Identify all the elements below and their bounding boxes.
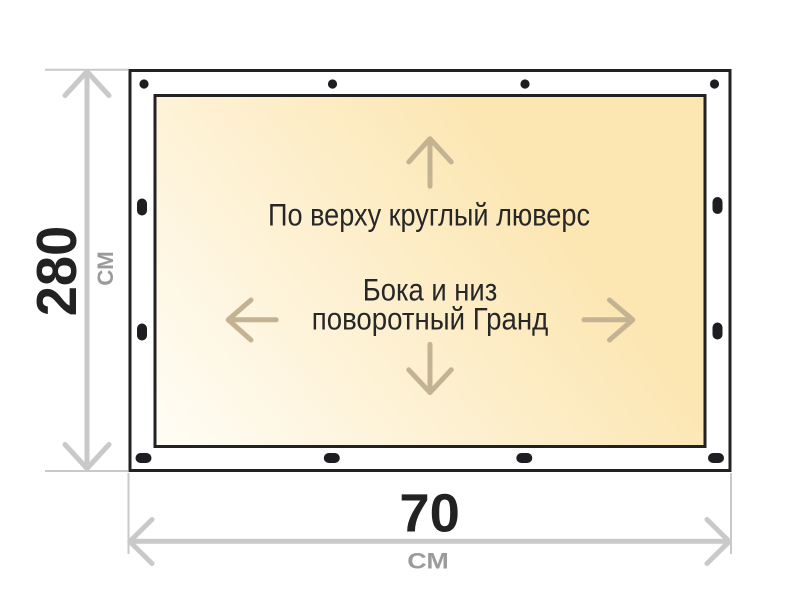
- svg-text:По верху круглый люверс: По верху круглый люверс: [268, 196, 590, 232]
- svg-text:СМ: СМ: [407, 548, 449, 573]
- svg-text:СМ: СМ: [93, 251, 118, 286]
- svg-text:280: 280: [25, 226, 88, 317]
- svg-text:поворотный Гранд: поворотный Гранд: [312, 301, 549, 337]
- svg-text:70: 70: [399, 485, 460, 544]
